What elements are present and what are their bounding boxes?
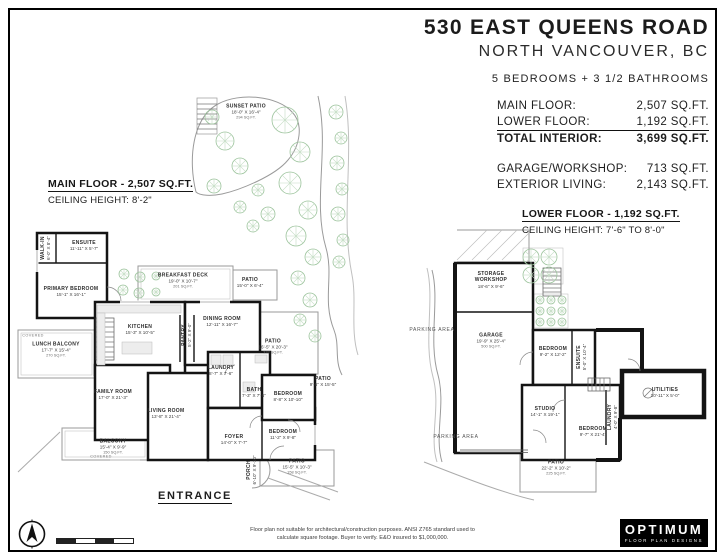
room-label: UTILITIES10'-11" X 5'-0" — [651, 387, 680, 399]
floor-plan-page: 530 EAST QUEENS ROAD NORTH VANCOUVER, BC… — [0, 0, 725, 560]
scale-bar — [56, 538, 134, 544]
room-label: LAUNDRY4'-0" X 9'-8" — [607, 404, 619, 430]
disclaimer-line-2: calculate square footage. Buyer to verif… — [225, 534, 500, 543]
disclaimer: Floor plan not suitable for architectura… — [225, 526, 500, 543]
company-logo: OPTIMUM FLOOR PLAN DESIGNS — [620, 519, 708, 547]
room-label: STUDIO14'-1" X 19'-1" — [530, 406, 559, 418]
room-label: BEDROOM9'-7" X 21'-4" — [579, 426, 607, 438]
room-label: STORAGEWORKSHOP18'-6" X 9'-6" — [475, 271, 507, 289]
room-label: GARAGE19'-9" X 25'-4"500 SQ.FT. — [476, 333, 505, 350]
lower-floor-labels: STORAGEWORKSHOP18'-6" X 9'-6"GARAGE19'-9… — [0, 0, 725, 560]
room-label: PARKING AREA — [433, 434, 478, 440]
disclaimer-line-1: Floor plan not suitable for architectura… — [225, 526, 500, 535]
room-label: ENSUITE5'-0" X 10'-4" — [576, 344, 588, 370]
room-label: BEDROOM9'-2" X 12'-2" — [539, 346, 567, 358]
room-label: PATIO22'-2" X 10'-2"225 SQ.FT. — [541, 460, 570, 477]
logo-name: OPTIMUM — [625, 523, 703, 536]
room-label: PARKING AREA — [409, 327, 454, 333]
compass-icon — [17, 518, 47, 550]
logo-subtitle: FLOOR PLAN DESIGNS — [625, 538, 703, 543]
